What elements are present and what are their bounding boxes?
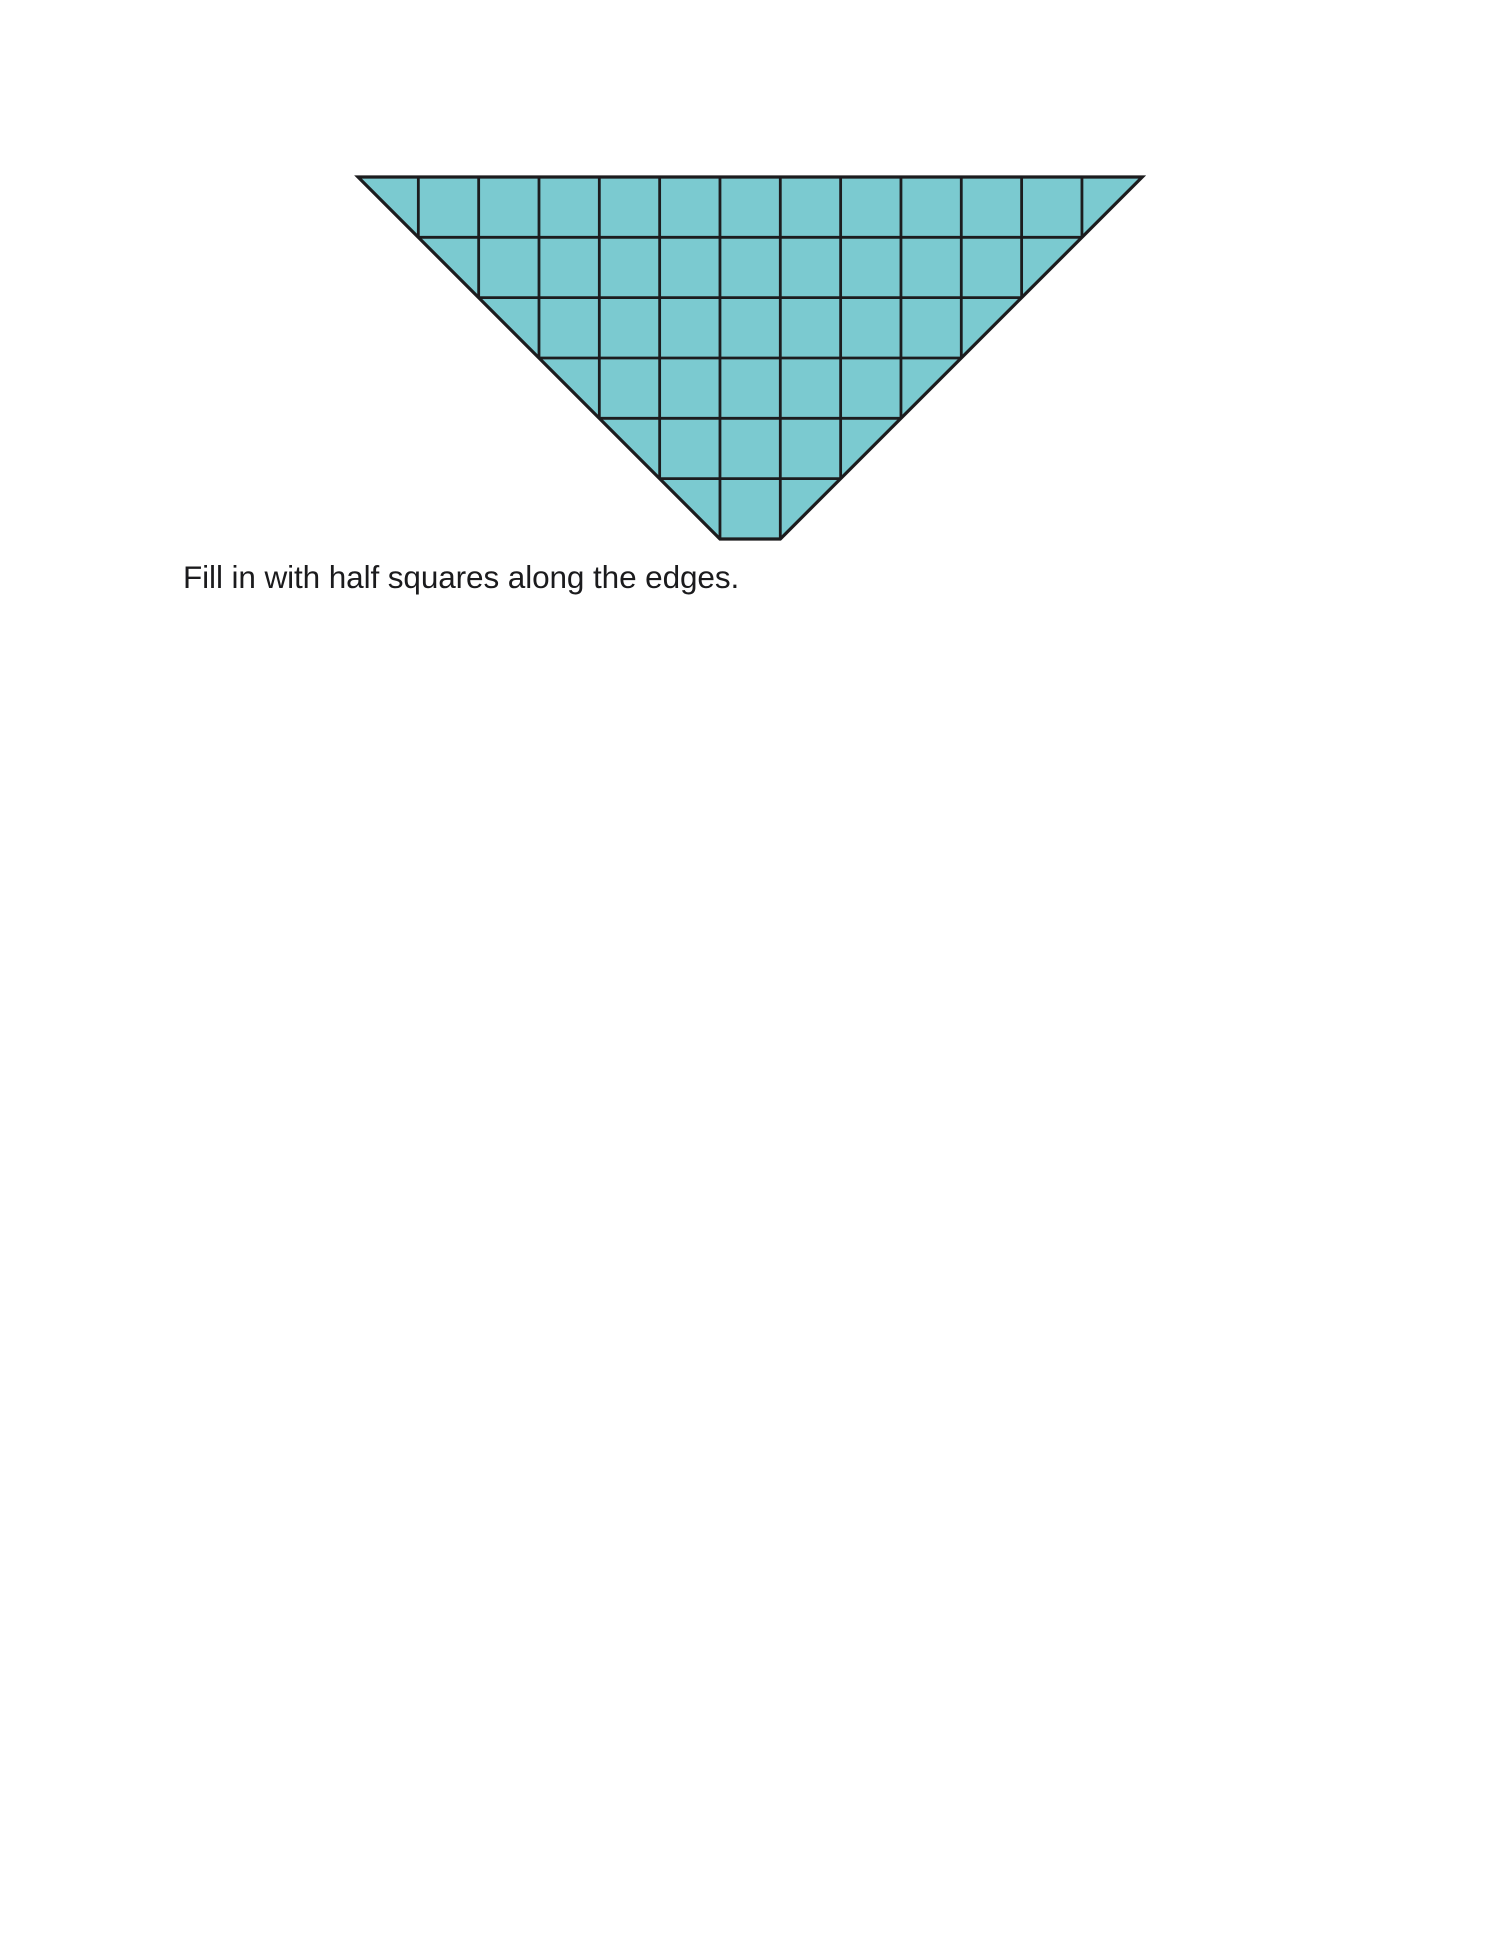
worksheet-page: Fill in with half squares along the edge…: [0, 0, 1500, 1941]
caption: Fill in with half squares along the edge…: [183, 559, 739, 595]
triangle-grid-figure: [354, 173, 1146, 543]
